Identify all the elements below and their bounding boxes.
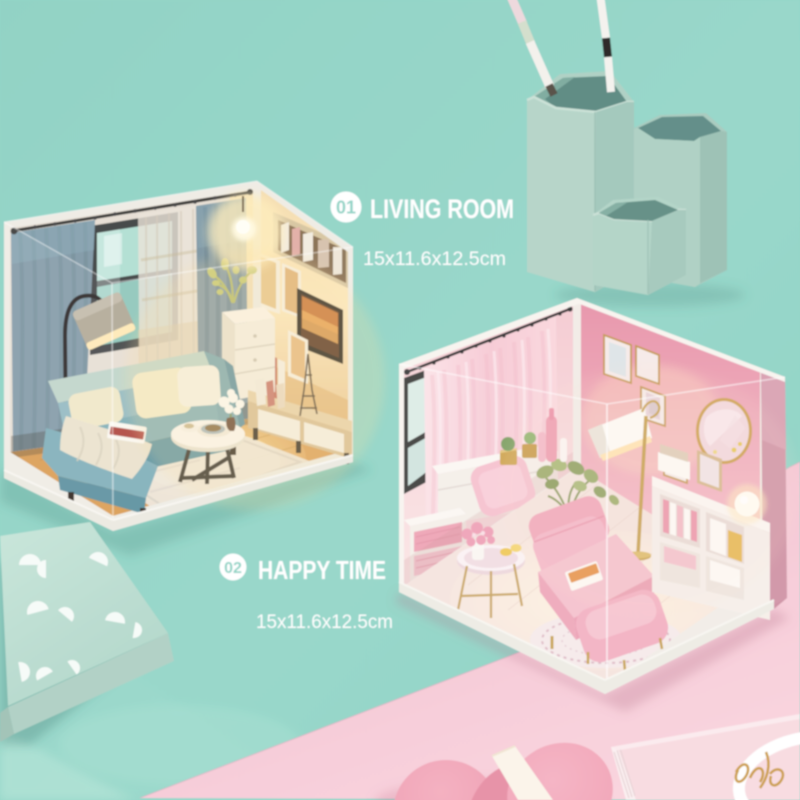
svg-text:15x11.6x12.5cm: 15x11.6x12.5cm — [363, 248, 506, 270]
svg-text:02: 02 — [224, 560, 242, 577]
svg-text:LIVING ROOM: LIVING ROOM — [370, 194, 514, 224]
svg-text:01: 01 — [336, 198, 356, 218]
svg-text:HAPPY TIME: HAPPY TIME — [258, 555, 386, 585]
svg-text:15x11.6x12.5cm: 15x11.6x12.5cm — [256, 611, 393, 633]
